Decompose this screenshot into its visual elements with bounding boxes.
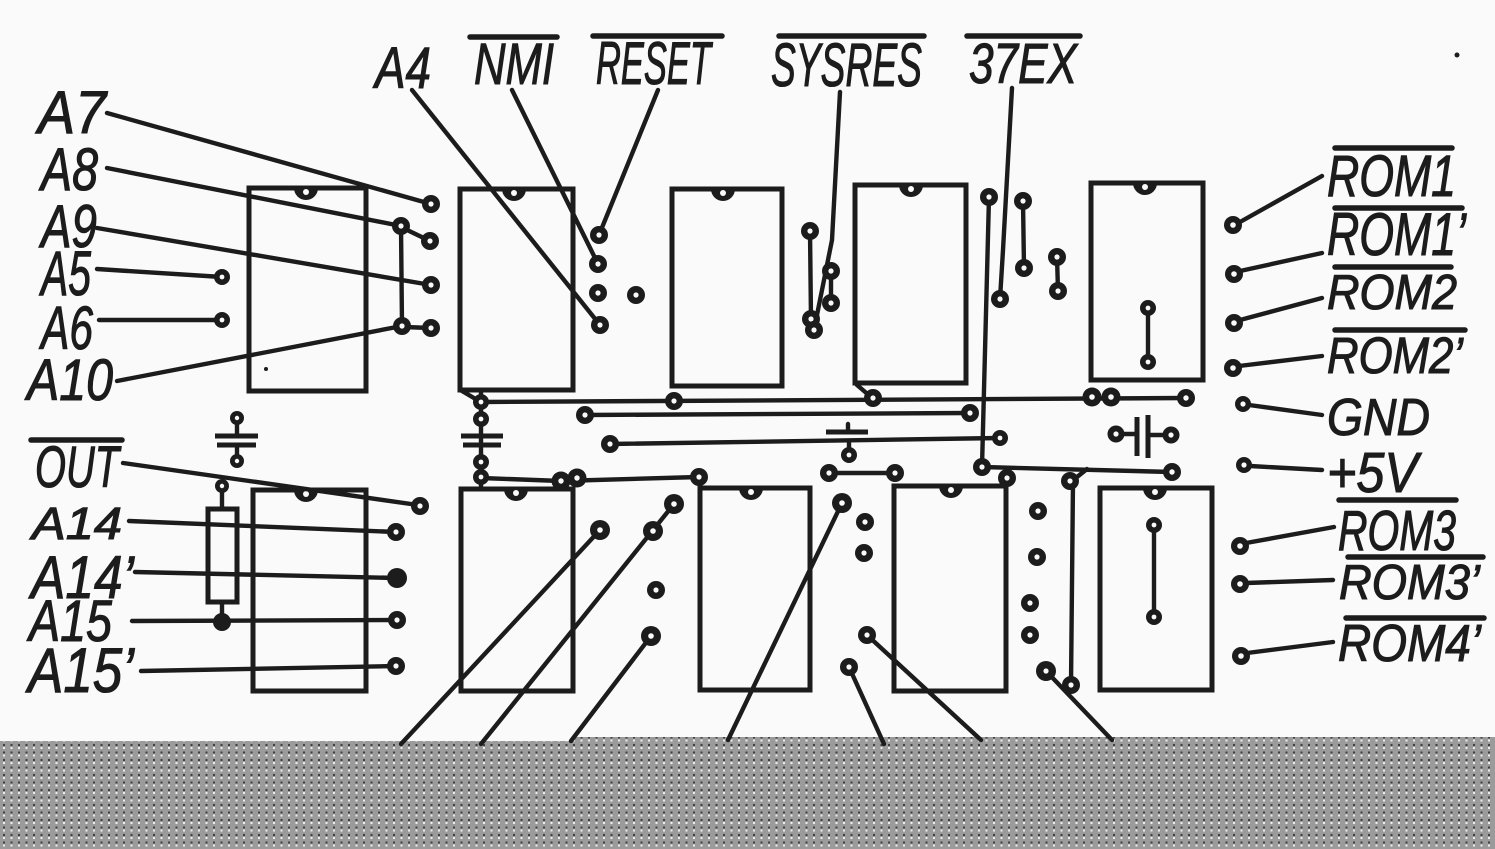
svg-text:ROM2: ROM2 xyxy=(1327,266,1457,320)
svg-text:A14: A14 xyxy=(29,498,122,549)
svg-text:37EX: 37EX xyxy=(969,32,1079,96)
svg-text:A10: A10 xyxy=(25,348,113,413)
svg-text:OUT: OUT xyxy=(35,435,121,500)
svg-text:A15’: A15’ xyxy=(25,636,135,706)
svg-text:NMI: NMI xyxy=(474,32,554,97)
svg-text:A4: A4 xyxy=(373,36,431,101)
svg-text:+5V: +5V xyxy=(1327,441,1422,505)
svg-text:ROM4’: ROM4’ xyxy=(1338,615,1482,673)
svg-text:ROM3’: ROM3’ xyxy=(1339,556,1481,610)
svg-text:SYSRES: SYSRES xyxy=(771,31,922,99)
svg-text:ROM1’: ROM1’ xyxy=(1327,201,1467,268)
svg-text:ROM1: ROM1 xyxy=(1327,144,1456,209)
svg-text:RESET: RESET xyxy=(596,30,713,97)
svg-text:ROM2’: ROM2’ xyxy=(1327,327,1464,384)
svg-text:ROM3: ROM3 xyxy=(1338,499,1456,563)
svg-text:GND: GND xyxy=(1327,389,1430,447)
